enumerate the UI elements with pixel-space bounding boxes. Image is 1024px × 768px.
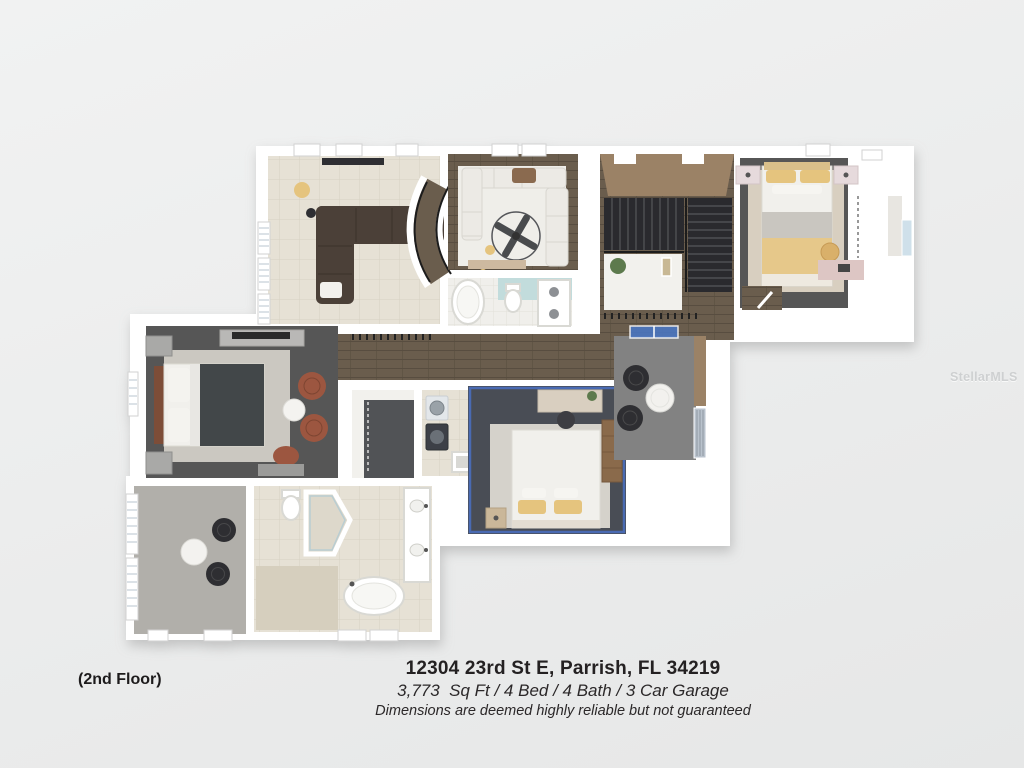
wicker-chair (617, 405, 643, 431)
bedroom-3 (468, 386, 626, 534)
bathtub (344, 577, 404, 615)
throw-pillow (320, 282, 342, 298)
master-bedroom (128, 326, 338, 478)
side-table (181, 539, 207, 565)
faucet (350, 582, 355, 587)
swivel-chair (300, 414, 328, 442)
exterior-wall (694, 336, 706, 406)
closet-shelf (888, 196, 902, 256)
laptop (838, 264, 850, 272)
specs-line: 3,773 Sq Ft / 4 Bed / 4 Bath / 3 Car Gar… (337, 680, 789, 701)
footer-caption: 12304 23rd St E, Parrish, FL 34219 3,773… (337, 657, 789, 721)
toilet (282, 490, 300, 520)
window (126, 494, 138, 554)
disclaimer-line: Dimensions are deemed highly reliable bu… (337, 701, 789, 721)
sink (549, 287, 559, 297)
bench (258, 464, 304, 476)
floorplan-body (126, 144, 914, 641)
floor-label: (2nd Floor) (78, 671, 162, 689)
mls-watermark: StellarMLS (950, 370, 1024, 384)
hallway (338, 334, 616, 380)
accent-chair (273, 446, 299, 466)
wicker-chair (623, 365, 649, 391)
floor-lamp (294, 182, 310, 198)
window (128, 372, 138, 416)
nightstand (146, 336, 172, 356)
listing-floorplan-image: StellarMLS (2nd Floor) 12304 23rd St E, … (0, 0, 1024, 768)
nightstand (146, 452, 172, 474)
bonus-room-windows (258, 222, 270, 324)
desk-chair (557, 411, 575, 429)
side-table (283, 399, 305, 421)
accent-pillow (512, 168, 536, 183)
bed (154, 364, 264, 446)
plant (587, 391, 597, 401)
balcony (614, 326, 706, 460)
floorplan-render (0, 0, 1024, 768)
tv (232, 332, 290, 339)
patio-table (646, 384, 674, 412)
side-table (306, 208, 316, 218)
stairwell (600, 154, 734, 340)
window (902, 220, 912, 256)
round-chair (212, 518, 236, 542)
entry-floor (742, 286, 782, 310)
double-vanity (404, 488, 430, 582)
vanity (538, 280, 570, 326)
sink (549, 309, 559, 319)
plant (610, 258, 626, 274)
bed (512, 430, 600, 528)
shower-floor (256, 566, 338, 630)
closet-shelf (352, 390, 364, 478)
master-bathroom (254, 486, 432, 632)
walk-in-closet (352, 390, 414, 478)
gold-decor (485, 245, 495, 255)
tv (322, 158, 384, 165)
desk-chair (821, 243, 839, 261)
wall-art (662, 258, 671, 276)
media-room (448, 154, 578, 270)
master-sitting-room (126, 486, 246, 634)
toilet (505, 284, 521, 312)
address-line: 12304 23rd St E, Parrish, FL 34219 (337, 657, 789, 680)
swivel-chair (298, 372, 326, 400)
media-console (468, 260, 526, 269)
round-chair (206, 562, 230, 586)
hall-bathroom (448, 278, 572, 326)
window (126, 558, 138, 620)
